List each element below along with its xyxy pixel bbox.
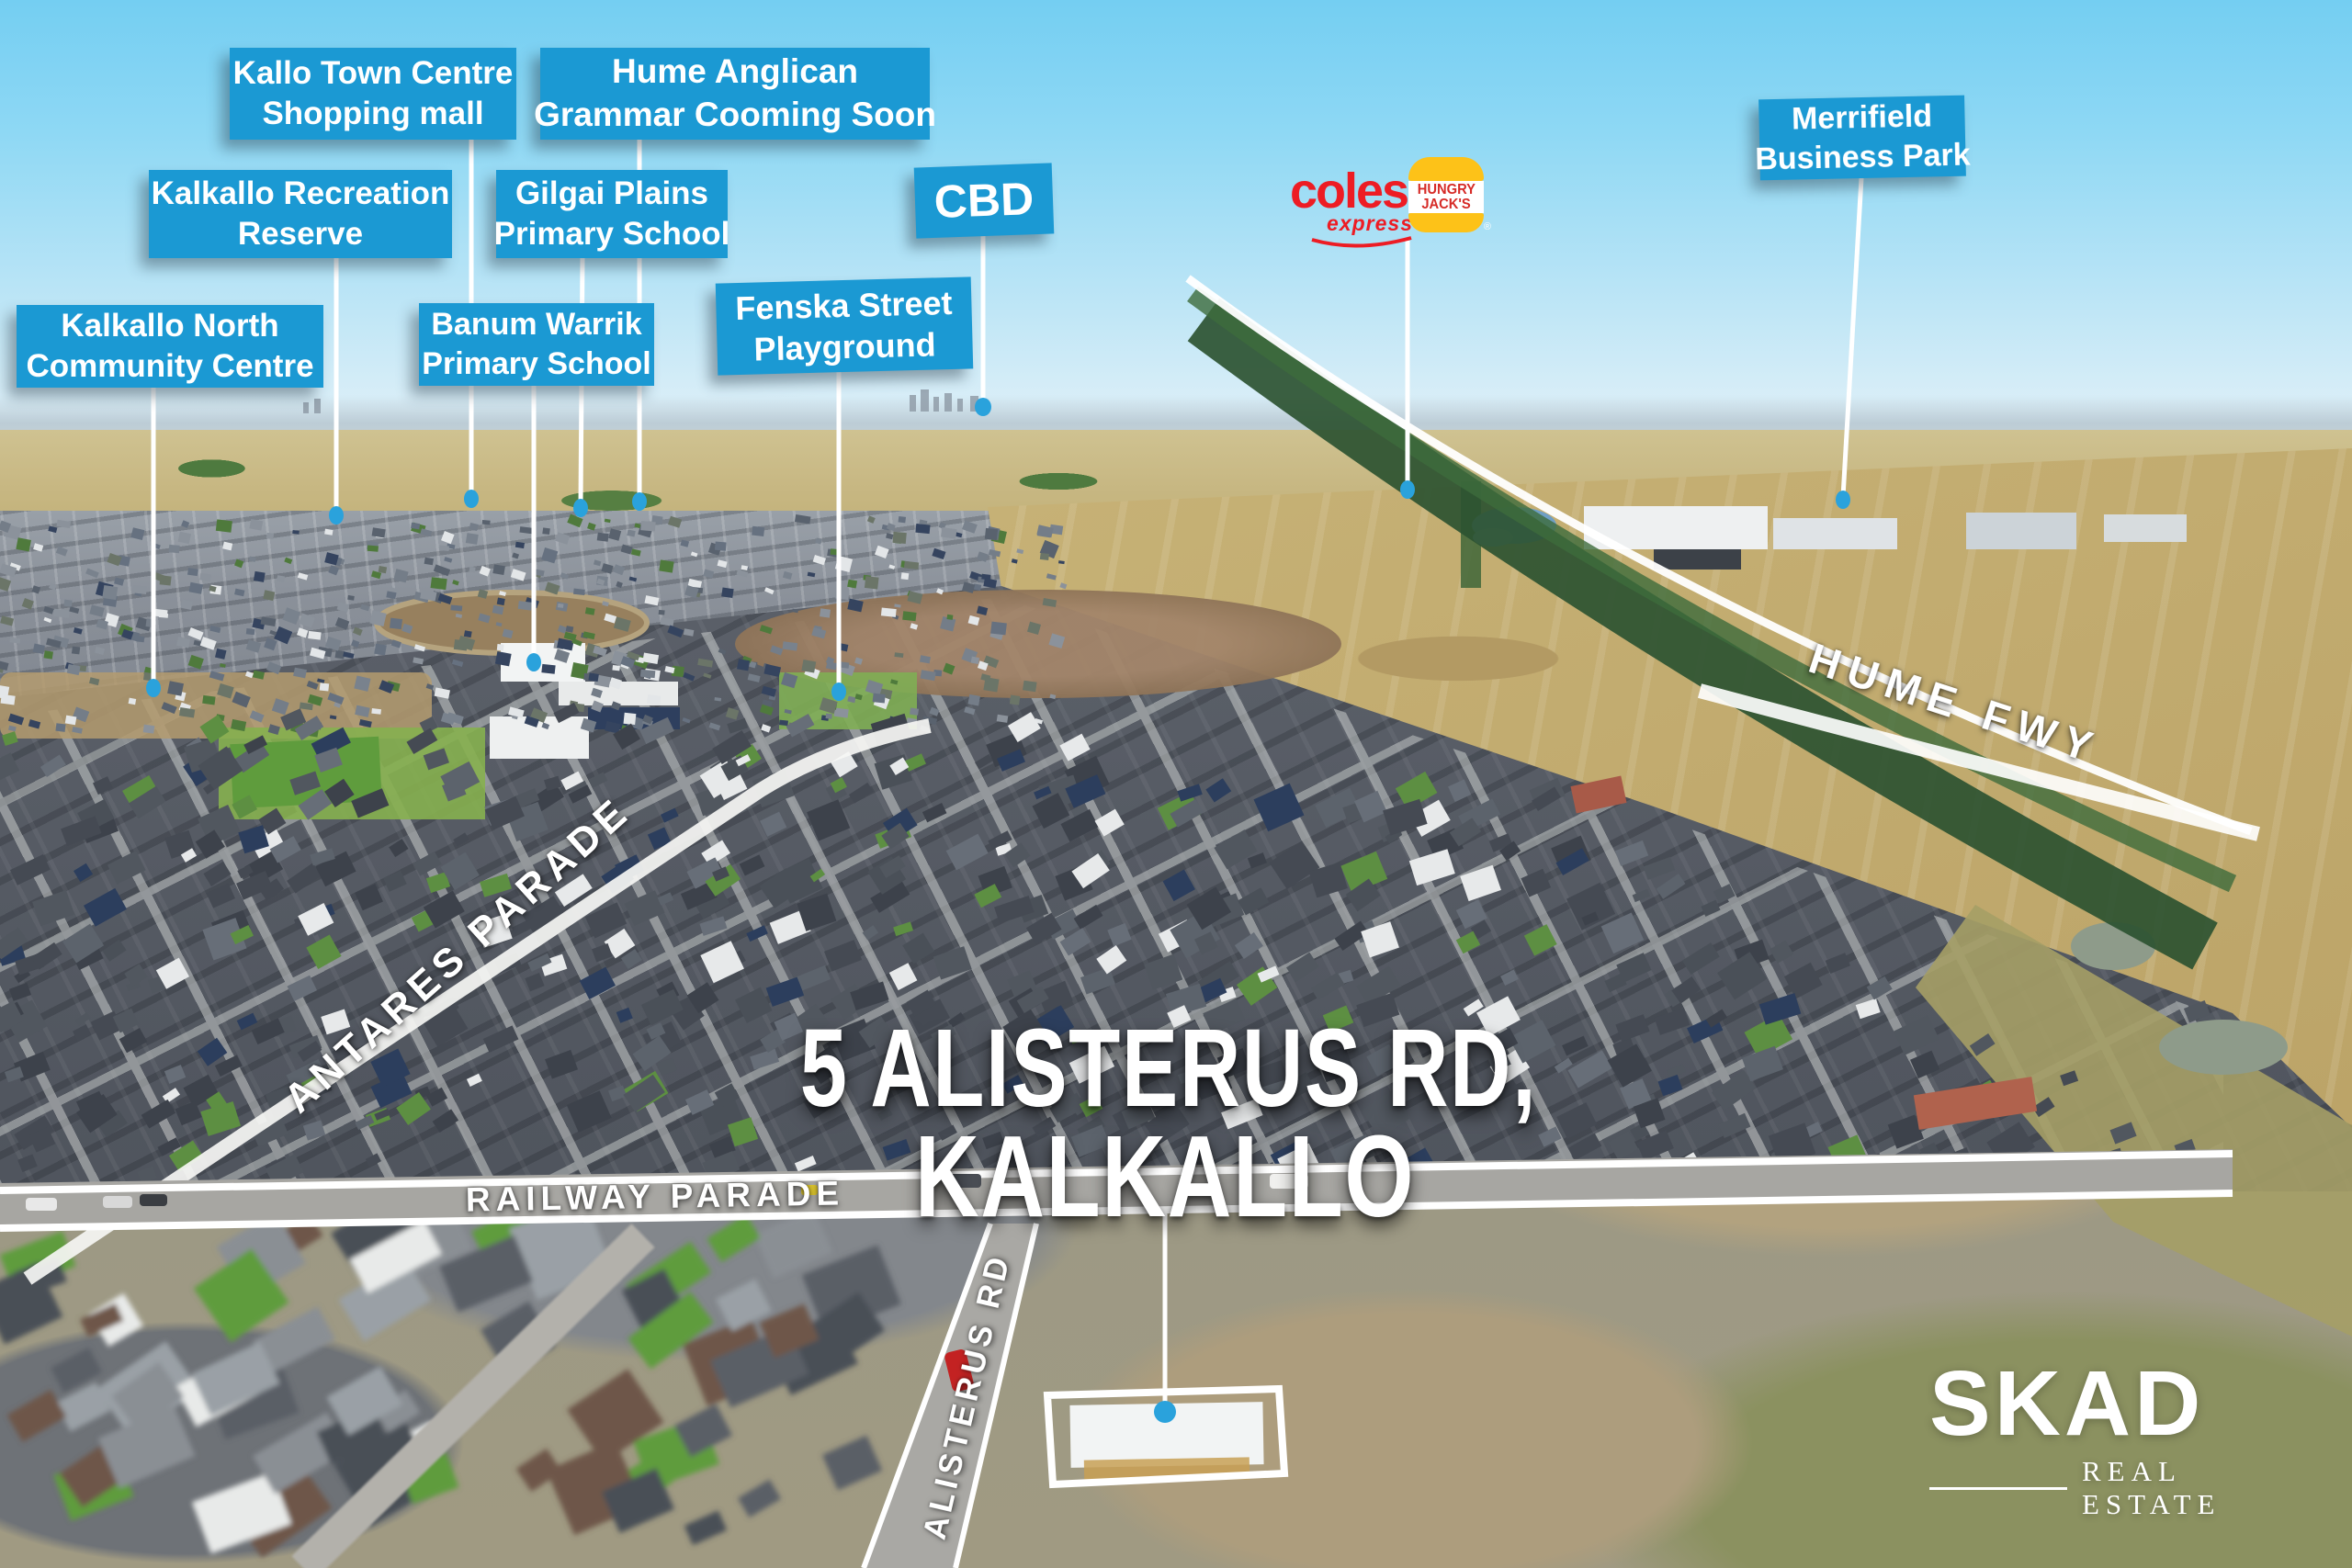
hj-line2: JACK'S (1421, 197, 1470, 211)
callout-fenska-playground: Fenska Street Playground (716, 276, 974, 375)
callout-text: Grammar Cooming Soon (534, 94, 936, 137)
callout-text: Primary School (422, 344, 650, 384)
skad-rule (1929, 1487, 2067, 1490)
callout-text: Fenska Street (735, 282, 953, 330)
skad-logo: SKAD REAL ESTATE (1929, 1358, 2278, 1521)
callout-text: Reserve (238, 214, 363, 254)
property-dot (1154, 1401, 1176, 1423)
callout-text: Community Centre (26, 346, 313, 387)
road-label-railway-parade: RAILWAY PARADE (466, 1174, 845, 1219)
coles-wordmark: coles (1284, 171, 1413, 213)
callout-text: Gilgai Plains (515, 174, 708, 214)
callout-kalkallo-recreation-reserve: Kalkallo Recreation Reserve (149, 170, 452, 258)
coles-express-logo: coles express (1284, 171, 1413, 251)
callout-text: Kalkallo North (61, 306, 278, 346)
callout-cbd: CBD (914, 163, 1055, 238)
property-address-line2: KALKALLO (915, 1111, 1415, 1244)
callout-text: Merrifield (1792, 97, 1933, 140)
callout-text: Playground (753, 323, 936, 370)
callout-kallo-town-centre: Kallo Town Centre Shopping mall (230, 48, 516, 140)
pond (2159, 1020, 2288, 1075)
merrifield-warehouses (1584, 506, 2187, 570)
coles-swoosh (1308, 236, 1419, 251)
callout-merrifield-business-park: Merrifield Business Park (1758, 96, 1966, 181)
callout-kalkallo-north-community: Kalkallo North Community Centre (17, 305, 323, 388)
subject-property (1047, 1389, 1284, 1484)
hj-bun-top (1408, 157, 1484, 181)
hungry-jacks-logo: HUNGRY JACK'S ® (1408, 157, 1484, 232)
callout-text: CBD (933, 170, 1035, 231)
callout-text: Kallo Town Centre (233, 53, 514, 94)
callout-gilgai-plains-primary: Gilgai Plains Primary School (496, 170, 728, 258)
creek-corridor (1916, 905, 2352, 1337)
callout-hume-anglican-grammar: Hume Anglican Grammar Cooming Soon (540, 48, 930, 140)
aerial-property-photo: Kallo Town Centre Shopping mall Hume Ang… (0, 0, 2352, 1568)
callout-text: Business Park (1755, 136, 1971, 180)
hj-line1: HUNGRY (1417, 183, 1475, 197)
callout-text: Kalkallo Recreation (152, 174, 450, 214)
callout-banum-warrik-primary: Banum Warrik Primary School (419, 303, 654, 386)
hj-bun-bottom (1408, 213, 1484, 232)
callout-text: Hume Anglican (612, 51, 858, 94)
callout-text: Banum Warrik (431, 305, 641, 344)
rooftops-foreground (0, 1189, 901, 1557)
callout-text: Primary School (494, 214, 730, 254)
skad-wordmark: SKAD (1929, 1358, 2278, 1450)
skad-tagline: REAL ESTATE (2082, 1455, 2278, 1521)
hj-wordmark: HUNGRY JACK'S (1408, 181, 1484, 213)
callout-text: Shopping mall (262, 94, 483, 134)
hj-registered-mark: ® (1484, 221, 1491, 232)
